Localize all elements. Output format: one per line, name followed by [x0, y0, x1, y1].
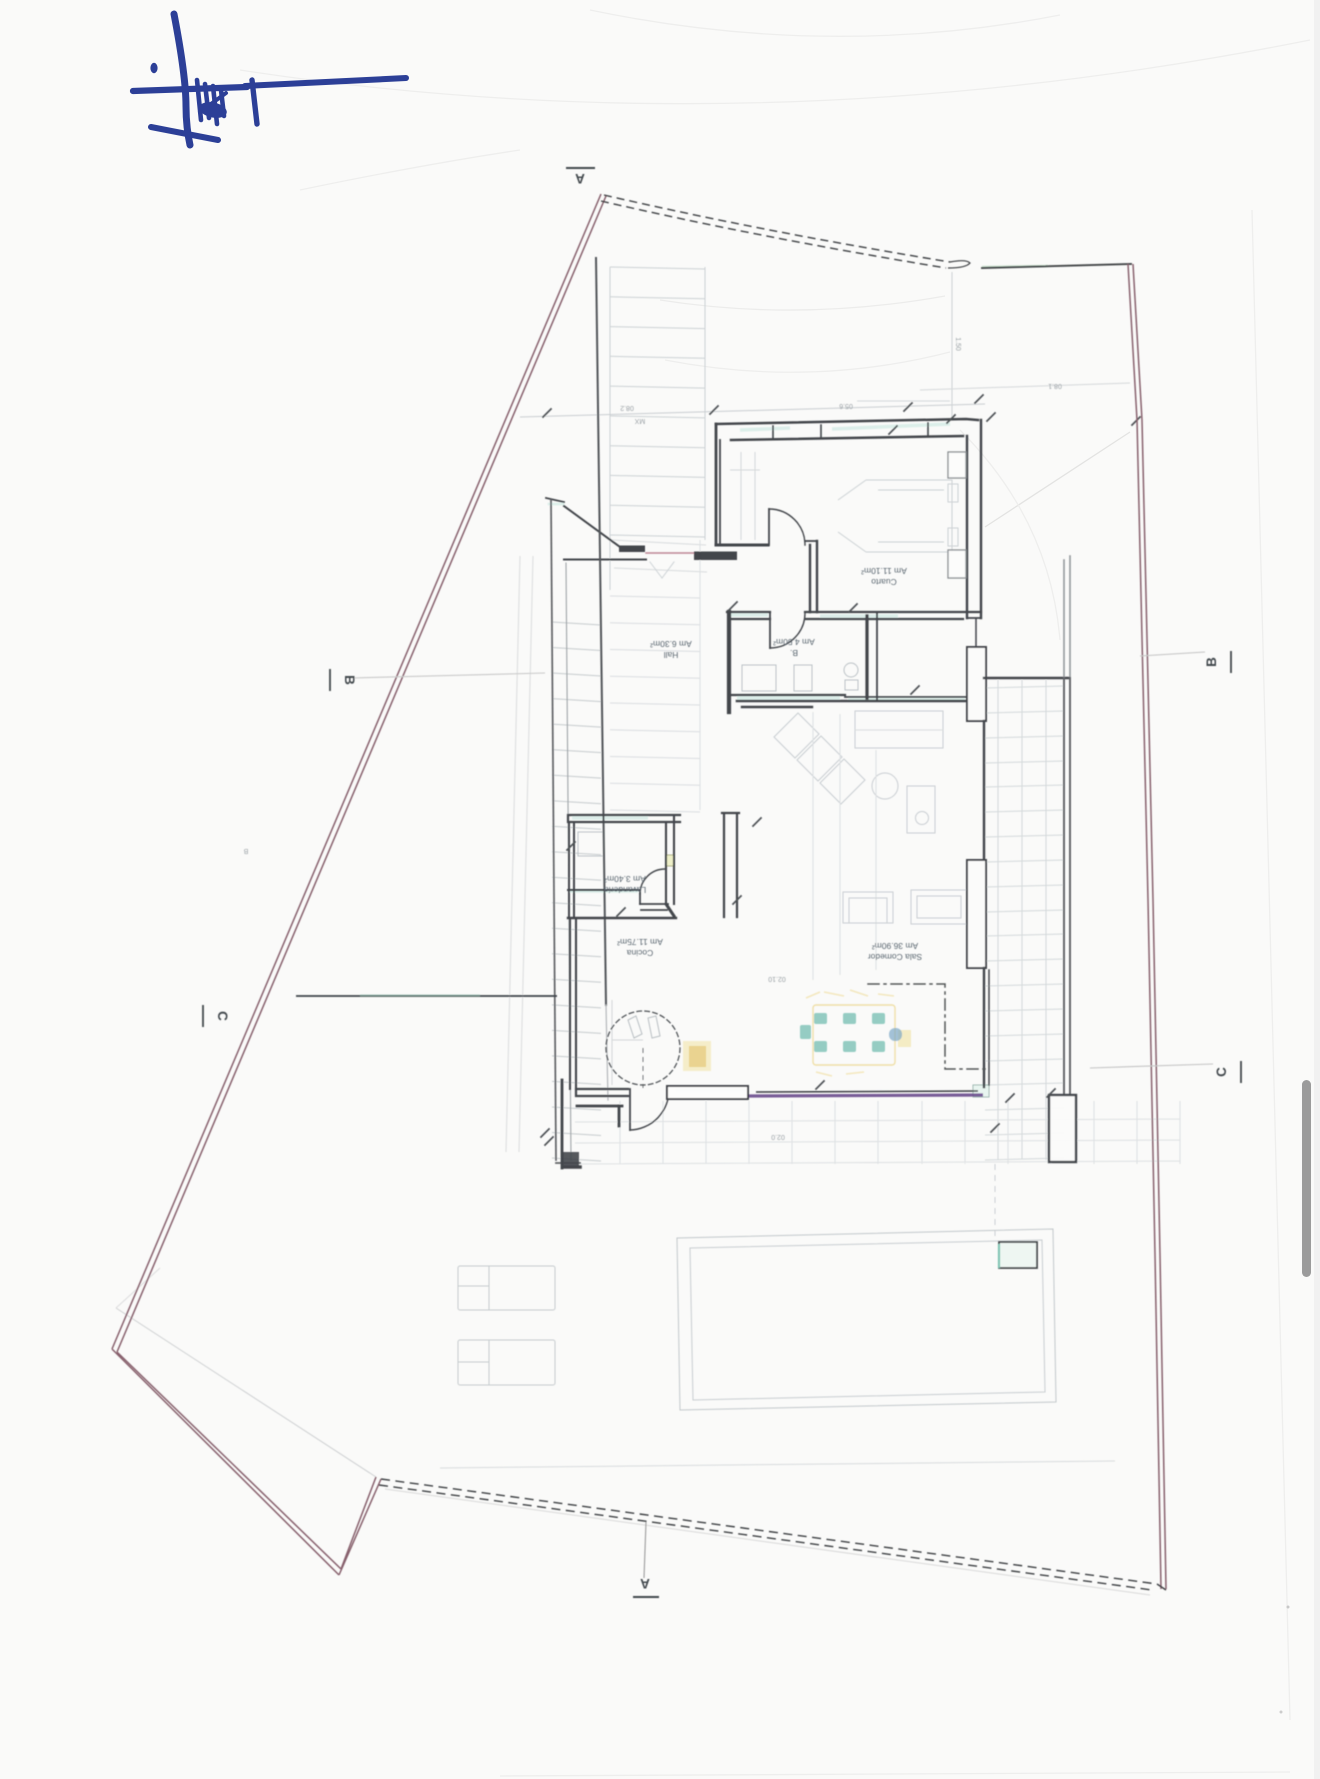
- svg-text:08.1: 08.1: [1048, 382, 1062, 389]
- svg-text:C: C: [1214, 1067, 1229, 1077]
- svg-text:02.10: 02.10: [768, 975, 786, 982]
- svg-text:08.2: 08.2: [620, 404, 634, 411]
- svg-text:B.: B.: [790, 648, 798, 658]
- svg-text:A: A: [575, 171, 585, 186]
- svg-text:Am 3.40m²: Am 3.40m²: [604, 874, 646, 884]
- svg-text:A: A: [640, 1576, 650, 1591]
- svg-text:Am 11.10m²: Am 11.10m²: [861, 566, 907, 576]
- svg-text:02.0: 02.0: [771, 1133, 785, 1140]
- svg-text:B: B: [243, 847, 248, 854]
- svg-text:C: C: [215, 1011, 230, 1021]
- svg-text:MX: MX: [634, 417, 645, 424]
- svg-text:Am 36.90m²: Am 36.90m²: [872, 941, 918, 951]
- svg-text:Cocina: Cocina: [627, 948, 654, 958]
- svg-text:Am 11.75m²: Am 11.75m²: [617, 937, 663, 947]
- svg-text:Am 6.30m²: Am 6.30m²: [650, 639, 692, 649]
- svg-text:Cuarto: Cuarto: [871, 577, 897, 587]
- svg-text:Sala Comedor: Sala Comedor: [868, 952, 923, 962]
- svg-text:Am 4.50m²: Am 4.50m²: [773, 637, 815, 647]
- svg-text:Hall: Hall: [664, 650, 679, 660]
- svg-text:05.6: 05.6: [839, 402, 853, 409]
- svg-text:B: B: [1204, 657, 1219, 667]
- svg-text:B: B: [342, 675, 357, 685]
- svg-text:1.50: 1.50: [954, 337, 961, 351]
- svg-text:Lavandería: Lavandería: [603, 885, 646, 895]
